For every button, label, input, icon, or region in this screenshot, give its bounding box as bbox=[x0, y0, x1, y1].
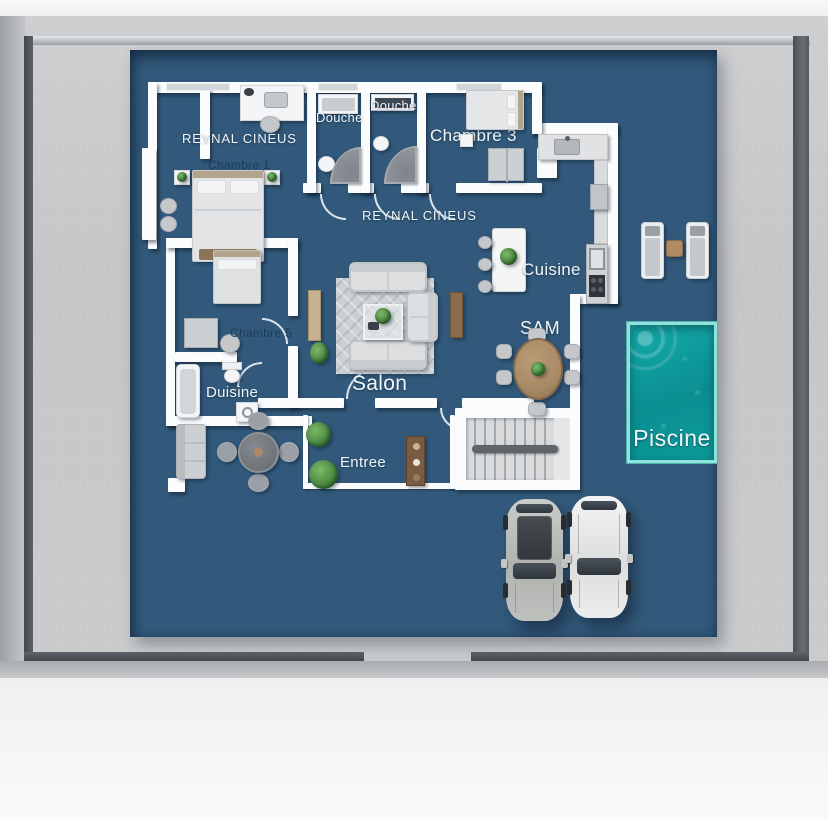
lounger-cushion bbox=[645, 238, 660, 276]
car-hood-seam bbox=[579, 580, 580, 608]
burner bbox=[591, 278, 596, 283]
dining-chair bbox=[564, 370, 580, 385]
bed-headboard bbox=[518, 91, 523, 129]
toilet-bowl bbox=[224, 369, 240, 383]
patio-chair bbox=[279, 442, 299, 462]
bar-stool bbox=[478, 236, 492, 249]
console-decor bbox=[413, 443, 420, 450]
burner bbox=[598, 287, 603, 292]
car-wheel bbox=[626, 512, 631, 527]
patio-chair bbox=[217, 442, 237, 462]
bed-duvet-fold bbox=[195, 209, 261, 211]
shower-corner bbox=[384, 146, 417, 184]
plant-island bbox=[500, 248, 517, 265]
lounger-pillow bbox=[645, 226, 660, 236]
fridge bbox=[590, 184, 608, 210]
wall bbox=[288, 238, 298, 316]
sofa-back bbox=[351, 264, 425, 272]
stove-oven-unit bbox=[586, 244, 608, 304]
wall bbox=[532, 82, 542, 134]
boundary-wall-shadow bbox=[0, 661, 828, 678]
floor-plan-render: { "plan": { "watermark_top": "REYNAL CIN… bbox=[0, 0, 828, 820]
patio-chair bbox=[248, 412, 269, 430]
plant-small bbox=[267, 172, 277, 182]
room-label-cuisine: Cuisine bbox=[522, 260, 581, 280]
staircase-handrail bbox=[472, 445, 558, 453]
car-windshield bbox=[513, 563, 556, 579]
bench-cushion-line bbox=[185, 460, 205, 462]
room-label-douche2: Douche bbox=[370, 98, 417, 113]
room-label-chambre5: Chambre 5 bbox=[230, 326, 292, 340]
car-hood-seam bbox=[515, 583, 516, 613]
vanity-accessory bbox=[244, 88, 254, 96]
wall bbox=[307, 92, 316, 193]
door-arc bbox=[320, 194, 346, 220]
bench-cushion-line bbox=[185, 442, 205, 444]
dining-chair bbox=[564, 344, 580, 359]
cooktop-burners bbox=[589, 275, 605, 297]
bathtub bbox=[176, 364, 200, 418]
wall bbox=[375, 398, 437, 408]
burner bbox=[591, 287, 596, 292]
sofa-bottom bbox=[349, 340, 427, 370]
sofa-top bbox=[349, 262, 427, 292]
wall bbox=[175, 352, 237, 362]
entry-console bbox=[406, 436, 425, 486]
car-silver bbox=[506, 499, 563, 621]
nightstand bbox=[460, 134, 473, 147]
car-wheel bbox=[567, 512, 572, 527]
bar-stool bbox=[478, 280, 492, 293]
console-cabinet bbox=[450, 292, 463, 338]
bathtub-basin bbox=[180, 369, 196, 414]
burner bbox=[598, 278, 603, 283]
vanity-sink bbox=[264, 92, 288, 108]
lounger-pillow bbox=[690, 226, 705, 236]
floor-plan-panel: REYNAL CINEUS REYNAL CINEUS Chambre 1 Ch… bbox=[130, 50, 717, 637]
kitchen-sink bbox=[554, 139, 580, 155]
sun-lounger bbox=[686, 222, 709, 279]
pillar bbox=[168, 478, 185, 492]
wall bbox=[258, 398, 344, 408]
car-hood-seam bbox=[618, 580, 619, 608]
kitchen-faucet bbox=[565, 136, 570, 141]
boundary-wall-top bbox=[24, 36, 810, 45]
patio-chair bbox=[248, 474, 269, 492]
wall bbox=[532, 123, 618, 134]
bed-pillow bbox=[217, 259, 257, 270]
car-wheel bbox=[561, 583, 566, 598]
pouf bbox=[160, 216, 177, 232]
dining-chair bbox=[496, 344, 512, 359]
boundary-wall-bottom-left bbox=[24, 652, 364, 661]
oven bbox=[589, 248, 605, 270]
room-label-piscine: Piscine bbox=[630, 425, 714, 452]
window bbox=[166, 83, 230, 91]
sofa-cushion-divider bbox=[410, 316, 430, 318]
bed-headboard bbox=[214, 251, 260, 257]
car-wheel bbox=[503, 583, 508, 598]
bed-chambre1 bbox=[192, 170, 264, 262]
car-wheel bbox=[567, 580, 572, 595]
plant-dining-table bbox=[531, 362, 545, 376]
sofa-cushion-divider bbox=[387, 344, 389, 362]
car-sunroof bbox=[517, 516, 552, 560]
car-wheel bbox=[626, 580, 631, 595]
sofa-right bbox=[406, 292, 438, 342]
left-edge-shadow bbox=[0, 16, 26, 678]
bed-pillow bbox=[197, 180, 226, 194]
sofa-cushion-divider bbox=[387, 272, 389, 290]
shower-corner bbox=[330, 147, 361, 184]
bar-stool bbox=[478, 258, 492, 271]
car-white bbox=[570, 496, 628, 618]
backdrop-bottom-band bbox=[0, 678, 828, 820]
car-windshield bbox=[577, 558, 621, 575]
wall bbox=[361, 92, 370, 193]
bed-pillow bbox=[507, 112, 516, 127]
car-mirror bbox=[627, 554, 633, 563]
lounger-side-table bbox=[666, 240, 683, 257]
car-mirror bbox=[501, 559, 507, 568]
outdoor-bench bbox=[176, 424, 206, 479]
desk-chambre5 bbox=[184, 318, 218, 348]
room-label-douche1: Douche bbox=[316, 110, 363, 125]
plant-salon bbox=[310, 342, 328, 364]
car-hood-seam bbox=[553, 583, 554, 613]
boundary-wall-right bbox=[793, 36, 809, 661]
car-rear-glass bbox=[516, 504, 553, 513]
pouf bbox=[160, 198, 177, 214]
bed-pillow bbox=[230, 180, 259, 194]
bench-back bbox=[177, 425, 185, 478]
patio-table bbox=[238, 432, 279, 473]
room-label-salon: Salon bbox=[352, 372, 407, 396]
backdrop-top-band bbox=[0, 0, 828, 16]
patio-table-center bbox=[254, 448, 263, 457]
watermark-text: REYNAL CINEUS bbox=[362, 208, 477, 223]
bed-chambre5 bbox=[213, 250, 261, 304]
coffee-table-tray bbox=[368, 322, 379, 330]
boundary-wall-left bbox=[24, 36, 33, 661]
plant-small bbox=[177, 172, 187, 182]
wall bbox=[166, 238, 175, 426]
console-decor bbox=[413, 459, 420, 466]
car-roof-seam bbox=[578, 514, 579, 554]
bed-pillow bbox=[507, 94, 516, 109]
window bbox=[318, 83, 358, 91]
entry-curb bbox=[303, 415, 308, 489]
bed-chambre3 bbox=[466, 90, 524, 130]
sun-lounger bbox=[641, 222, 664, 279]
toilet bbox=[373, 136, 389, 151]
room-label-duisine: Duisine bbox=[206, 384, 258, 401]
dining-chair bbox=[528, 402, 546, 416]
boundary-wall-bottom-right bbox=[471, 652, 809, 661]
car-mirror bbox=[565, 554, 571, 563]
watermark-text: REYNAL CINEUS bbox=[182, 131, 297, 146]
wall bbox=[462, 398, 534, 408]
room-label-entree: Entree bbox=[340, 454, 386, 471]
plant-entry bbox=[309, 460, 338, 489]
dining-chair bbox=[496, 370, 512, 385]
wall bbox=[200, 83, 210, 159]
car-rear-glass bbox=[581, 501, 617, 510]
car-wheel bbox=[561, 515, 566, 530]
bed-headboard bbox=[193, 171, 263, 178]
wall bbox=[608, 123, 618, 304]
wall bbox=[417, 92, 426, 193]
pool: Piscine bbox=[627, 322, 717, 463]
closet-chambre3 bbox=[488, 148, 524, 181]
lounger-cushion bbox=[690, 238, 705, 276]
closet-divider bbox=[506, 149, 508, 182]
plant-entry bbox=[306, 422, 331, 447]
tv-console bbox=[308, 290, 321, 341]
console-decor bbox=[413, 474, 420, 481]
car-roof-seam bbox=[619, 514, 620, 554]
car-wheel bbox=[503, 515, 508, 530]
wall bbox=[456, 183, 542, 193]
wall-ledge bbox=[142, 148, 156, 240]
